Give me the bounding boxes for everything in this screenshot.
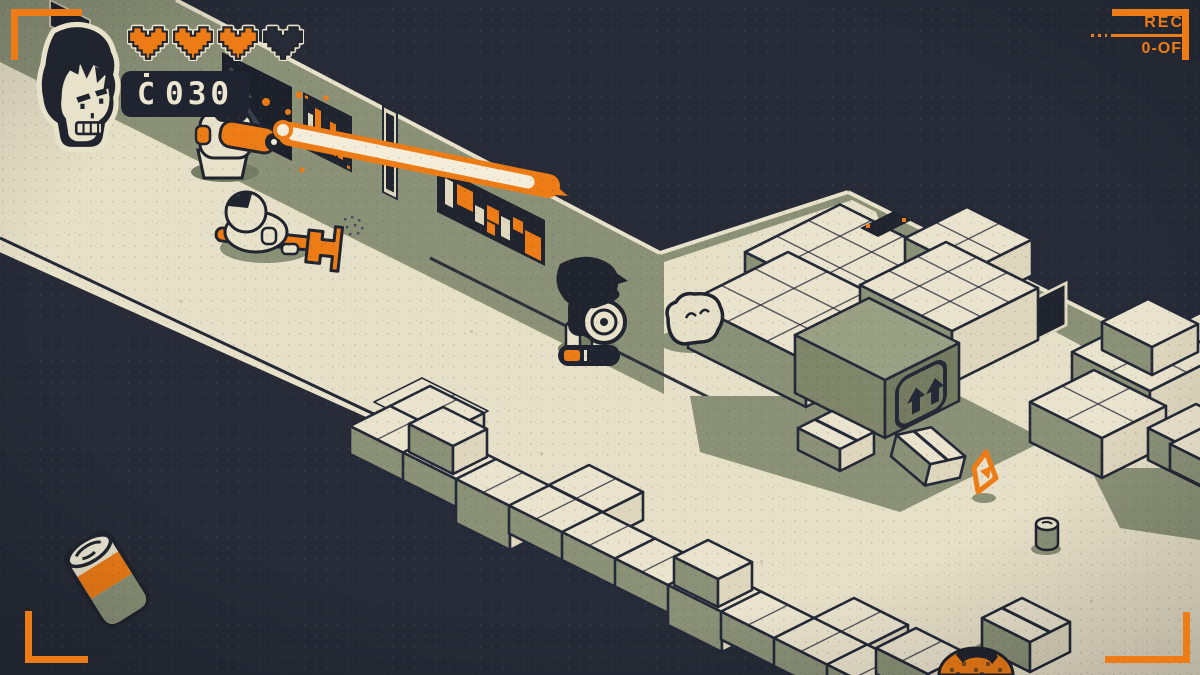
heart-icon <box>127 23 169 61</box>
ammo-counter: C 030 <box>121 71 249 117</box>
player-face-icon <box>18 16 122 152</box>
rec-indicator: REC <box>1144 14 1184 32</box>
player-portrait <box>18 16 122 157</box>
heart-icon <box>172 23 214 61</box>
rec-line-dots-icon <box>1091 34 1107 37</box>
game-screen: REC 0-OF C 030 <box>0 0 1200 675</box>
hearts-row <box>127 23 304 61</box>
heart-icon <box>262 23 304 61</box>
rec-divider-line <box>1111 34 1185 37</box>
ammo-value: 030 <box>165 76 233 112</box>
rec-counter: 0-OF <box>1142 40 1182 58</box>
screen-corner-bracket-bottom-right <box>1105 612 1190 663</box>
screen-corner-bracket-bottom-left <box>25 611 88 663</box>
heart-icon <box>217 23 259 61</box>
battery-ammo-icon: C <box>137 77 155 112</box>
